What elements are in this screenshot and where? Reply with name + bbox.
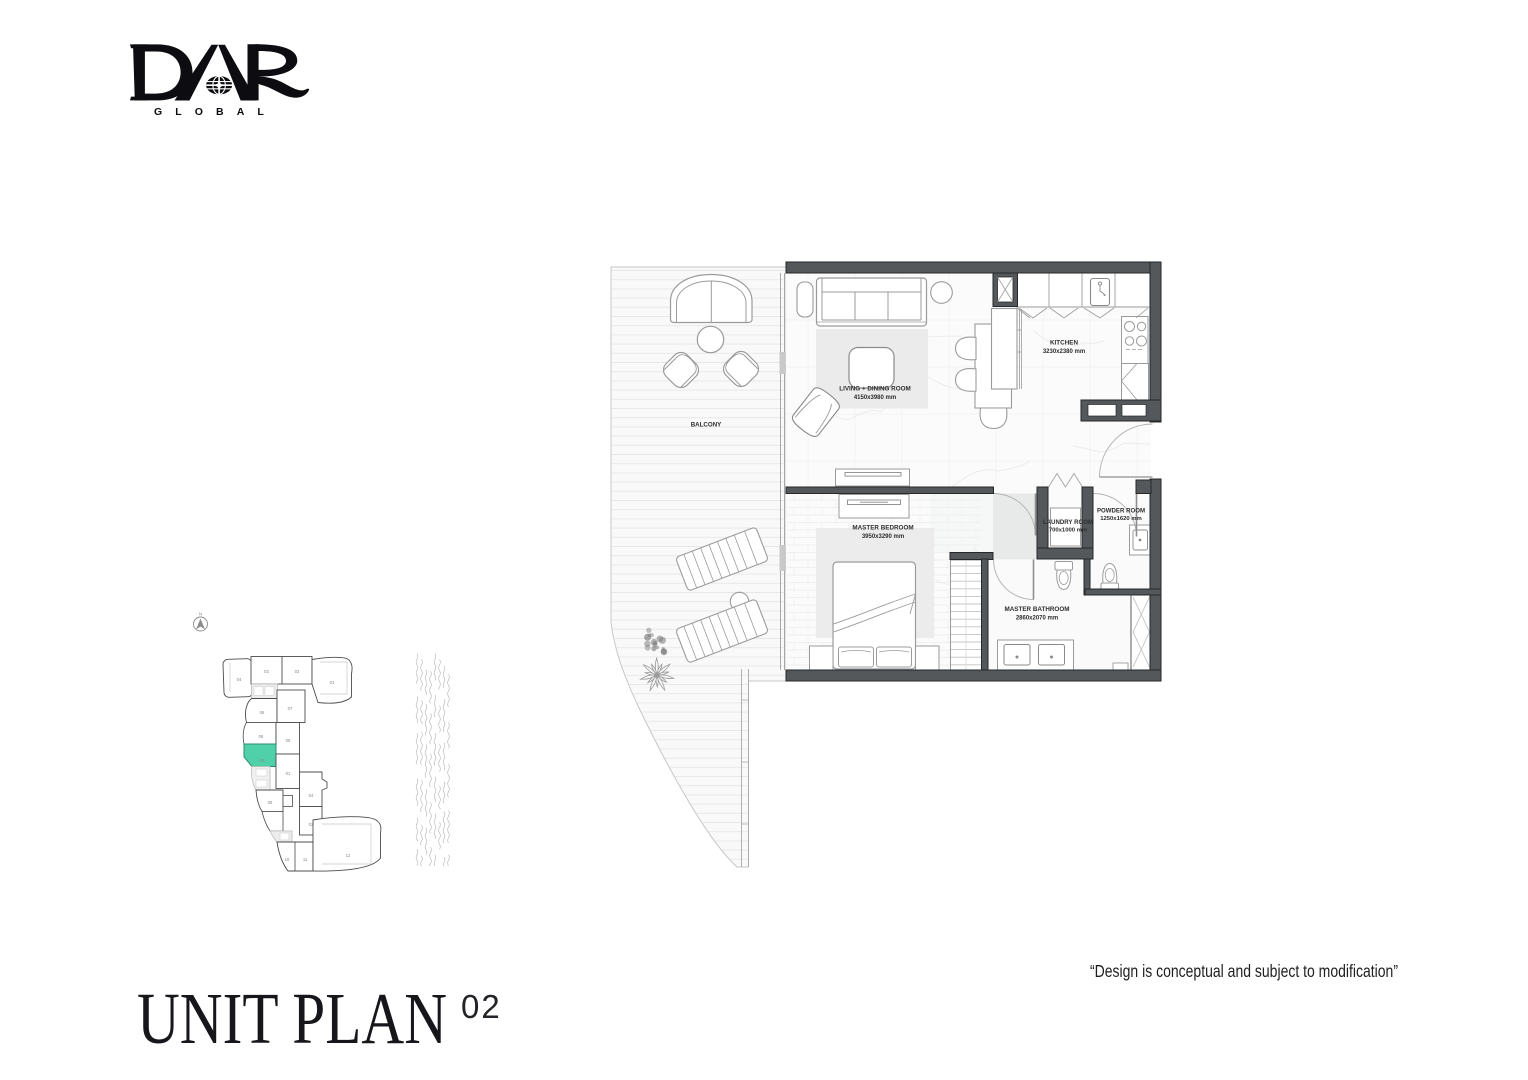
svg-text:02: 02	[260, 758, 265, 763]
svg-text:UNIT PLAN: UNIT PLAN	[137, 978, 447, 1059]
svg-text:KITCHEN: KITCHEN	[1050, 340, 1078, 347]
svg-text:700x1000 mm: 700x1000 mm	[1049, 528, 1087, 534]
svg-text:10: 10	[285, 857, 290, 862]
svg-text:04: 04	[309, 793, 314, 798]
svg-text:12: 12	[346, 853, 351, 858]
svg-text:06: 06	[259, 734, 264, 739]
svg-text:MASTER BEDROOM: MASTER BEDROOM	[852, 525, 913, 532]
svg-text:LAUNDRY ROOM: LAUNDRY ROOM	[1043, 519, 1093, 526]
svg-text:04: 04	[237, 677, 242, 682]
svg-text:1250x1620 mm: 1250x1620 mm	[1100, 516, 1142, 522]
svg-text:08: 08	[268, 800, 273, 805]
svg-text:01: 01	[330, 680, 335, 685]
svg-text:07: 07	[288, 706, 293, 711]
svg-text:02: 02	[461, 988, 502, 1025]
svg-text:2860x2070 mm: 2860x2070 mm	[1016, 616, 1058, 622]
svg-text:4150x3980 mm: 4150x3980 mm	[854, 395, 896, 401]
svg-text:LIVING + DINING ROOM: LIVING + DINING ROOM	[839, 386, 911, 393]
svg-text:11: 11	[303, 857, 308, 862]
svg-text:GLOBAL: GLOBAL	[154, 106, 277, 118]
svg-text:POWDER ROOM: POWDER ROOM	[1097, 508, 1145, 515]
svg-text:BALCONY: BALCONY	[691, 422, 722, 429]
svg-text:N: N	[199, 612, 202, 617]
svg-text:3230x2380 mm: 3230x2380 mm	[1043, 349, 1085, 355]
svg-text:3950x3290 mm: 3950x3290 mm	[862, 534, 904, 540]
svg-text:03: 03	[264, 669, 269, 674]
svg-text:02: 02	[295, 669, 300, 674]
svg-text:01: 01	[286, 771, 291, 776]
svg-text:06: 06	[260, 710, 265, 715]
svg-text:“Design is conceptual and subj: “Design is conceptual and subject to mod…	[1090, 961, 1398, 981]
svg-text:MASTER BATHROOM: MASTER BATHROOM	[1005, 606, 1070, 613]
svg-text:05: 05	[286, 738, 291, 743]
